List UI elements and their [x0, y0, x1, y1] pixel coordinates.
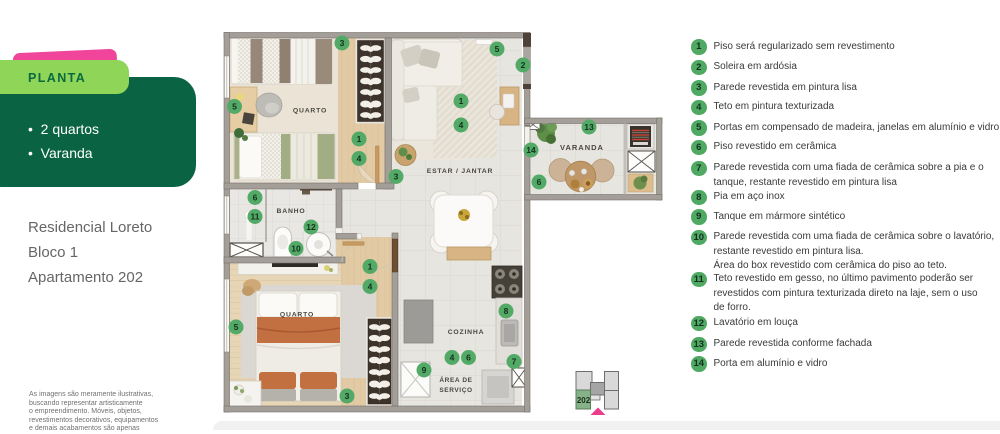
svg-text:13: 13	[584, 122, 594, 132]
svg-text:2: 2	[521, 60, 526, 70]
svg-text:4: 4	[357, 154, 362, 164]
svg-text:4: 4	[450, 353, 455, 363]
svg-text:3: 3	[340, 38, 345, 48]
svg-text:4: 4	[459, 120, 464, 130]
svg-text:6: 6	[466, 353, 471, 363]
svg-text:3: 3	[345, 391, 350, 401]
svg-text:1: 1	[459, 96, 464, 106]
svg-text:ESTAR / JANTAR: ESTAR / JANTAR	[427, 168, 493, 175]
svg-text:3: 3	[394, 172, 399, 182]
svg-text:SERVIÇO: SERVIÇO	[439, 387, 472, 394]
svg-text:QUARTO: QUARTO	[293, 108, 327, 115]
svg-text:QUARTO: QUARTO	[280, 312, 314, 319]
svg-text:6: 6	[253, 193, 258, 203]
svg-text:6: 6	[537, 177, 542, 187]
svg-text:14: 14	[526, 145, 536, 155]
svg-text:9: 9	[422, 365, 427, 375]
svg-text:7: 7	[512, 357, 517, 367]
svg-text:5: 5	[232, 102, 237, 112]
svg-text:11: 11	[251, 212, 260, 222]
svg-text:COZINHA: COZINHA	[448, 329, 485, 336]
svg-text:10: 10	[291, 244, 301, 254]
svg-text:ÁREA DE: ÁREA DE	[439, 375, 472, 384]
svg-text:VARANDA: VARANDA	[560, 143, 604, 152]
svg-text:5: 5	[234, 322, 239, 332]
svg-text:4: 4	[368, 282, 373, 292]
svg-text:BANHO: BANHO	[277, 208, 306, 215]
svg-text:12: 12	[306, 222, 316, 232]
svg-text:8: 8	[504, 306, 509, 316]
svg-text:1: 1	[368, 262, 373, 272]
svg-text:1: 1	[357, 134, 362, 144]
svg-text:5: 5	[495, 44, 500, 54]
svg-text:202: 202	[577, 396, 591, 405]
